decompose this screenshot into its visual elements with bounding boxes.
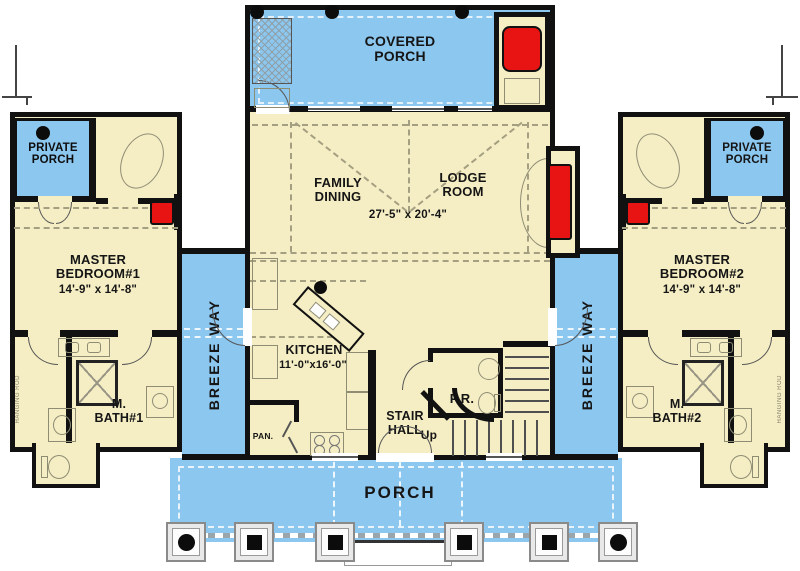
- master-bedroom1-dim: 14'-9" x 14'-8": [38, 284, 158, 296]
- hanging-rod-left-label: HANGING ROD: [15, 375, 21, 424]
- porch-steps: [344, 540, 452, 566]
- stairs-upper-run: [505, 356, 549, 418]
- column-core: [178, 534, 195, 551]
- bath1-cabinet-sink: [152, 393, 168, 409]
- hanging-rod-left-wrap: HANGING ROD: [13, 368, 23, 430]
- fireplace-wall-stub: [174, 194, 182, 230]
- porch-dashed-line: [333, 462, 335, 526]
- porch-column-round: [598, 522, 638, 562]
- hanging-rod-right-wrap: HANGING ROD: [775, 368, 785, 430]
- tubroom-door-opening: [108, 198, 138, 204]
- ceiling-dashed-line: [250, 252, 550, 254]
- kitchen-counter: [252, 258, 278, 310]
- bath1-door-opening: [118, 330, 152, 337]
- fireplace-wall-stub: [618, 194, 626, 230]
- divider-window-glass: [458, 108, 492, 110]
- powder-sink: [478, 358, 500, 380]
- vanity-sink: [87, 342, 101, 353]
- ceiling-dashed-line: [250, 260, 550, 262]
- toilet-tank: [41, 456, 48, 478]
- outdoor-fireplace: [502, 26, 542, 72]
- private-porch-right-label: PRIVATE PORCH: [714, 142, 780, 167]
- kitchen-stair-wall: [368, 350, 376, 455]
- vanity-sink: [719, 342, 733, 353]
- master-bedroom2-dim: 14'-9" x 14'-8": [642, 284, 762, 296]
- ceiling-dashed-line: [408, 120, 410, 212]
- bedroom-dashed-line: [622, 227, 786, 229]
- bath1-double-vanity: [58, 338, 110, 357]
- covered-porch-grill: [252, 18, 292, 84]
- island-sink: [322, 313, 340, 330]
- kitchen-column-dot: [314, 281, 327, 294]
- bedroom-dashed-line: [14, 207, 148, 209]
- pantry-label: PAN.: [246, 432, 280, 441]
- roof-mark-left-tick: [26, 96, 28, 105]
- porch-dashed-line: [461, 462, 463, 526]
- bath2-vanity-sink: [729, 415, 747, 435]
- bath1-vanity-sink: [53, 415, 71, 435]
- threshold-glass: [312, 456, 358, 458]
- porch-tubroom-wall: [90, 118, 96, 202]
- column-core: [247, 535, 262, 550]
- island-sink: [309, 302, 327, 319]
- vanity-sink: [65, 342, 79, 353]
- master-bedroom2-label: MASTER BEDROOM#2: [642, 253, 762, 281]
- master-bath2-label: M. BATH#2: [646, 398, 708, 425]
- column-core: [328, 535, 343, 550]
- porch-column-round: [166, 522, 206, 562]
- bath2-door-opening: [648, 330, 682, 337]
- divider-window-glass: [308, 108, 360, 110]
- tubroom-door-opening: [662, 198, 692, 204]
- ceiling-dashed-line: [290, 122, 292, 252]
- kitchen-label: KITCHEN: [281, 344, 347, 358]
- master-bath1-label: M. BATH#1: [88, 398, 150, 425]
- lodge-room-label: LODGE ROOM: [433, 171, 493, 199]
- bedroom2-fireplace: [626, 201, 650, 225]
- stairs-lower-run: [452, 420, 548, 456]
- porch-column-square: [444, 522, 484, 562]
- roof-mark-right-v: [781, 45, 783, 98]
- private-porch-left-label: PRIVATE PORCH: [20, 142, 86, 167]
- family-dining-label: FAMILY DINING: [303, 176, 373, 204]
- private-porch-left-column-dot: [36, 126, 50, 140]
- vanity-sink: [697, 342, 711, 353]
- covered-porch-column-dot: [250, 5, 264, 19]
- ceiling-dashed-line: [252, 124, 548, 126]
- porch-label: PORCH: [350, 484, 450, 502]
- covered-porch-column-dot: [455, 5, 469, 19]
- column-core: [610, 534, 627, 551]
- divider-window-glass: [392, 108, 444, 110]
- breezeway-left-label-wrap: BREEZE WAY: [182, 250, 245, 460]
- front-door-opening: [376, 453, 434, 462]
- porch-column-square: [234, 522, 274, 562]
- covered-porch-label: COVERED PORCH: [350, 34, 450, 64]
- porch-column-square: [529, 522, 569, 562]
- covered-porch-column-dot: [325, 5, 339, 19]
- lodge-fireplace: [548, 164, 572, 240]
- column-core: [542, 535, 557, 550]
- toilet-bowl: [48, 455, 70, 479]
- kitchen-counter: [252, 345, 278, 379]
- toilet-tank: [752, 456, 759, 478]
- covered-porch-bench: [254, 88, 290, 108]
- bath1-door-opening: [28, 330, 60, 337]
- toilet-bowl: [730, 455, 752, 479]
- bedroom-dashed-line: [652, 207, 786, 209]
- hanging-rod-right-label: HANGING ROD: [777, 375, 783, 424]
- threshold-glass: [486, 456, 522, 458]
- great-room-dim: 27'-5" x 20'-4": [348, 209, 468, 221]
- roof-mark-left-v: [15, 45, 17, 98]
- floor-plan: PORCH BREEZE WAY BREEZE WAY COVERED PORC…: [0, 0, 800, 571]
- powder-toilet-tank: [494, 394, 501, 412]
- master-bedroom1-label: MASTER BEDROOM#1: [38, 253, 158, 281]
- bath2-door-opening: [740, 330, 772, 337]
- outdoor-fireplace-hearth: [504, 78, 540, 104]
- bedroom-dashed-line: [14, 227, 178, 229]
- private-porch-right-column-dot: [750, 126, 764, 140]
- column-core: [457, 535, 472, 550]
- pantry-wall: [294, 400, 299, 422]
- pantry-wall: [245, 400, 299, 405]
- roof-mark-right-tick: [772, 96, 774, 105]
- bath2-double-vanity: [690, 338, 742, 357]
- kitchen-dim: 11'-0"x16'-0": [276, 360, 350, 372]
- porch-column-square: [315, 522, 355, 562]
- bedroom1-fireplace: [150, 201, 174, 225]
- porch-tubroom-wall: [704, 118, 710, 202]
- breezeway-right-label-wrap: BREEZE WAY: [555, 250, 618, 460]
